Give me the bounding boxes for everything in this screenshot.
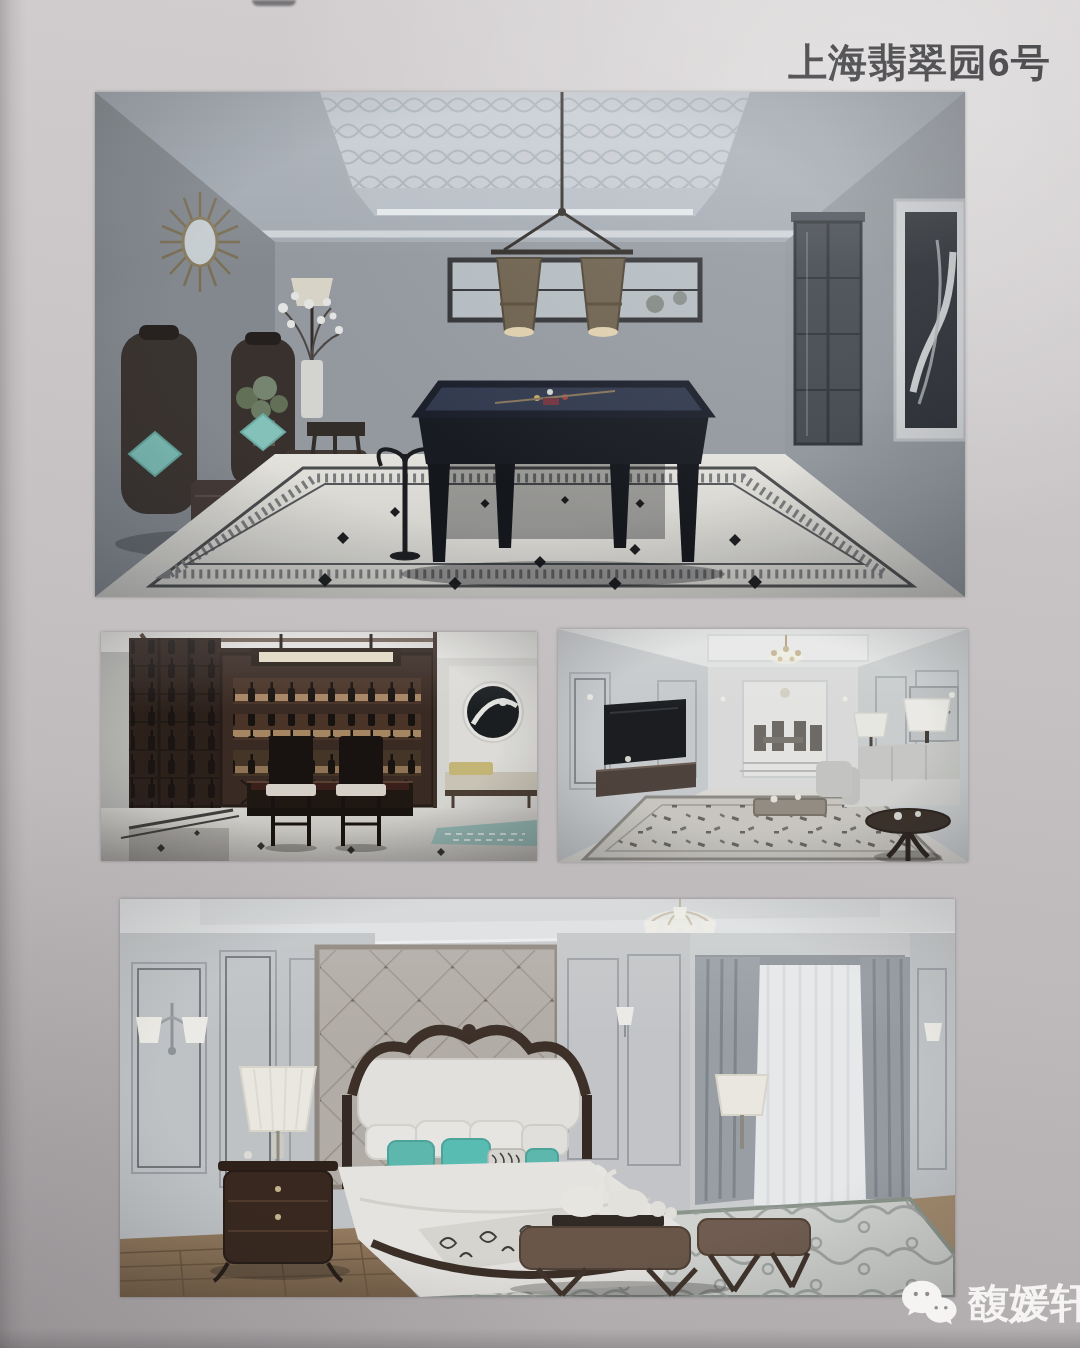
page-title: 上海翡翠园6号: [788, 36, 1078, 82]
wine-bar-rendering: [101, 632, 537, 861]
photo-vignette: [95, 92, 965, 597]
camera-artifact: [252, 0, 296, 6]
photo-bedroom: [120, 899, 955, 1297]
wechat-icon: [899, 1276, 959, 1330]
watermark-brand: 馥媛轩: [968, 1276, 1080, 1330]
living-room-rendering: [558, 629, 968, 862]
photo-vignette: [101, 632, 537, 861]
photo-living-room: [558, 629, 968, 862]
page-edge-shadow: [0, 0, 26, 1348]
page-bottom-shadow: [0, 1328, 1080, 1348]
billiard-room-rendering: [95, 92, 965, 597]
photo-vignette: [120, 899, 955, 1297]
photo-wine-bar: [101, 632, 537, 861]
photo-billiard-room: [95, 92, 965, 597]
watermark: 馥媛轩: [899, 1276, 1080, 1330]
photo-vignette: [558, 629, 968, 862]
bedroom-rendering: [120, 899, 955, 1297]
